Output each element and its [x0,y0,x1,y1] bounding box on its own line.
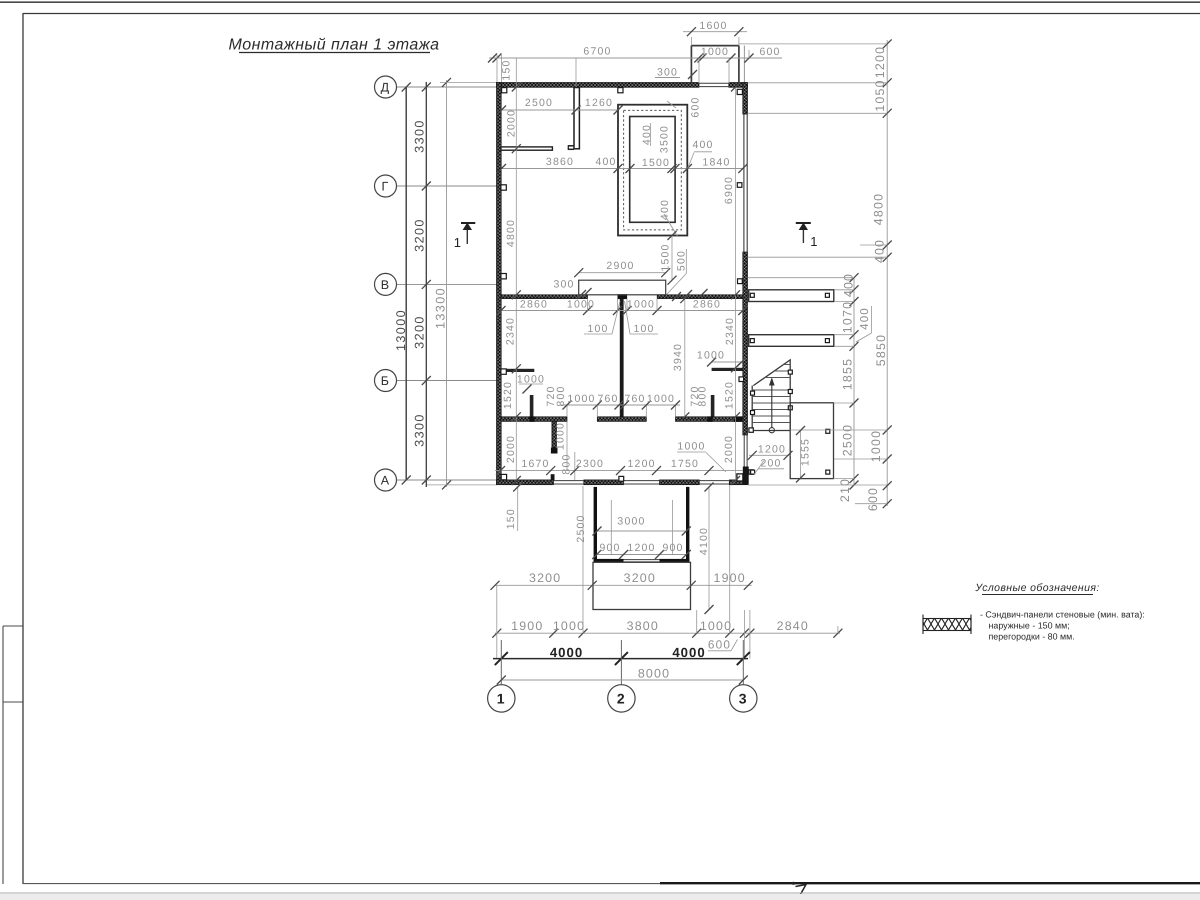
svg-text:1050: 1050 [873,79,887,111]
svg-text:1520: 1520 [502,381,514,409]
svg-text:800: 800 [561,453,573,474]
svg-text:1000: 1000 [627,298,655,310]
svg-text:Условные обозначения:: Условные обозначения: [974,582,1099,594]
svg-text:3300: 3300 [412,119,426,153]
svg-text:Монтажный план 1 этажа: Монтажный план 1 этажа [228,37,439,54]
svg-text:3860: 3860 [546,156,574,168]
svg-text:2500: 2500 [575,514,587,542]
svg-text:400: 400 [659,199,671,220]
svg-text:1000: 1000 [553,619,585,633]
svg-text:- Сэндвич-панели стеновые (мин: - Сэндвич-панели стеновые (мин. вата): [980,610,1145,620]
svg-text:13000: 13000 [394,309,408,351]
svg-text:1520: 1520 [724,381,736,409]
svg-text:2860: 2860 [520,298,548,310]
svg-text:1500: 1500 [660,243,672,271]
svg-text:600: 600 [690,96,702,117]
svg-text:1000: 1000 [647,393,675,405]
svg-text:200: 200 [760,458,781,470]
svg-text:2860: 2860 [693,298,721,310]
svg-text:1600: 1600 [699,20,727,32]
svg-text:2000: 2000 [506,109,518,137]
svg-text:2840: 2840 [777,619,809,633]
svg-text:400: 400 [641,124,653,145]
svg-text:210: 210 [838,478,852,502]
svg-text:4800: 4800 [872,193,886,225]
svg-text:1200: 1200 [758,443,786,455]
svg-text:400: 400 [842,273,856,297]
svg-text:2340: 2340 [505,317,517,345]
svg-text:2340: 2340 [724,317,736,345]
svg-text:4000: 4000 [550,645,583,660]
svg-text:600: 600 [866,487,880,511]
svg-text:перегородки - 80 мм.: перегородки - 80 мм. [989,632,1075,642]
svg-text:900: 900 [662,542,683,554]
svg-text:760: 760 [597,393,618,405]
svg-text:1260: 1260 [585,97,613,109]
svg-text:150: 150 [505,508,517,529]
svg-text:1: 1 [454,235,462,250]
svg-text:2: 2 [617,690,626,706]
svg-text:1200: 1200 [873,46,887,78]
svg-text:наружные - 150 мм;: наружные - 150 мм; [989,621,1070,631]
svg-text:1000: 1000 [517,373,545,385]
svg-text:1000: 1000 [701,46,729,58]
svg-text:300: 300 [553,279,574,291]
svg-text:500: 500 [676,250,688,271]
svg-text:1000: 1000 [567,298,595,310]
svg-text:2300: 2300 [576,458,604,470]
svg-text:В: В [381,278,391,292]
svg-text:3200: 3200 [412,315,426,349]
svg-text:600: 600 [759,46,780,58]
svg-text:1750: 1750 [671,458,699,470]
svg-text:3200: 3200 [624,571,656,585]
svg-text:3500: 3500 [659,125,671,153]
svg-text:800: 800 [697,385,709,406]
svg-text:100: 100 [587,323,608,335]
svg-text:1855: 1855 [841,358,855,390]
svg-text:3940: 3940 [672,343,684,371]
svg-text:1200: 1200 [627,542,655,554]
svg-text:Г: Г [382,180,390,194]
svg-text:1000: 1000 [567,393,595,405]
svg-text:8000: 8000 [638,667,670,681]
svg-text:1000: 1000 [677,441,705,453]
svg-text:4000: 4000 [672,645,705,660]
svg-text:2000: 2000 [505,435,517,463]
svg-text:400: 400 [859,307,871,330]
svg-text:Б: Б [381,374,390,388]
svg-text:1900: 1900 [511,619,543,633]
svg-text:3000: 3000 [617,515,645,527]
svg-text:4100: 4100 [698,527,710,555]
svg-text:2900: 2900 [606,260,634,272]
svg-text:1500: 1500 [642,157,670,169]
svg-text:1: 1 [497,690,506,706]
svg-text:3200: 3200 [412,218,426,252]
svg-text:3800: 3800 [627,619,659,633]
svg-text:Д: Д [381,81,391,95]
svg-text:2000: 2000 [723,435,735,463]
svg-text:150: 150 [501,59,513,80]
svg-text:1840: 1840 [702,156,730,168]
svg-text:5850: 5850 [874,334,888,366]
svg-text:1070: 1070 [841,301,855,333]
svg-text:100: 100 [633,323,654,335]
svg-text:900: 900 [599,542,620,554]
svg-text:300: 300 [657,67,678,79]
svg-text:1000: 1000 [697,350,725,362]
svg-text:13300: 13300 [434,287,448,329]
svg-text:1: 1 [810,234,818,249]
svg-text:6700: 6700 [583,46,611,58]
svg-text:400: 400 [873,239,887,263]
svg-text:1555: 1555 [799,438,811,466]
svg-text:400: 400 [692,139,713,151]
svg-text:1000: 1000 [555,422,567,450]
svg-text:1000: 1000 [869,430,883,462]
svg-text:1670: 1670 [521,458,549,470]
svg-text:2500: 2500 [841,424,855,456]
svg-text:6900: 6900 [723,176,735,204]
svg-text:2500: 2500 [525,97,553,109]
svg-text:1200: 1200 [628,458,656,470]
svg-text:400: 400 [595,156,616,168]
svg-text:4800: 4800 [505,219,517,247]
svg-text:1000: 1000 [700,619,732,633]
svg-text:3: 3 [739,690,748,706]
svg-text:600: 600 [708,637,731,651]
svg-text:3300: 3300 [412,413,426,447]
svg-text:760: 760 [624,393,645,405]
svg-text:3200: 3200 [529,571,561,585]
svg-text:А: А [381,474,391,488]
svg-text:800: 800 [555,385,567,406]
